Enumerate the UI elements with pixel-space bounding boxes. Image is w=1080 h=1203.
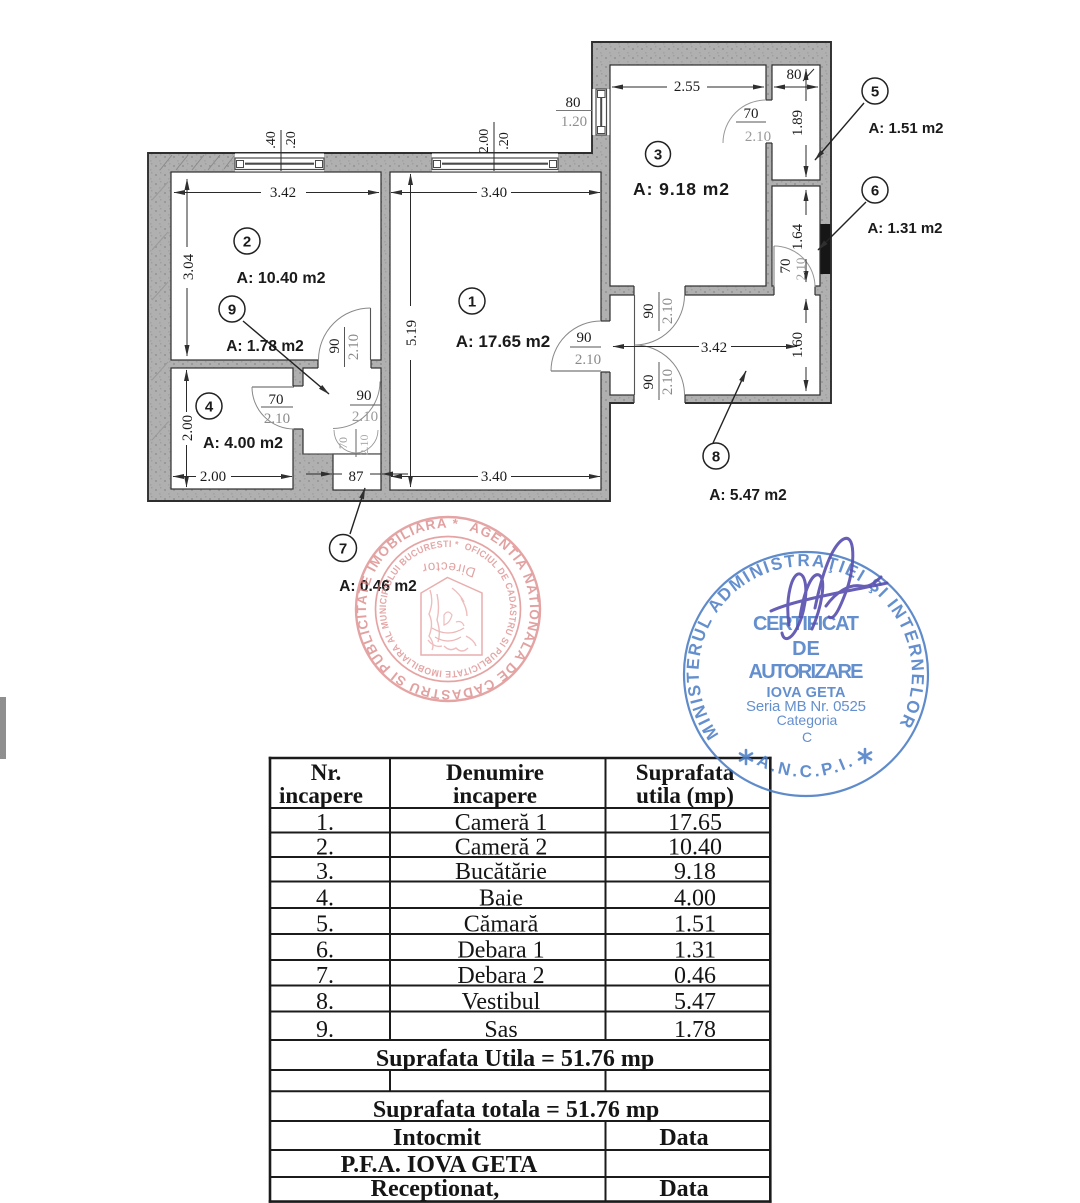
- svg-text:9.: 9.: [316, 1017, 334, 1043]
- svg-text:Data: Data: [659, 1176, 708, 1202]
- svg-text:Suprafata totala = 51.76 mp: Suprafata totala = 51.76 mp: [373, 1097, 659, 1123]
- svg-text:Debara 2: Debara 2: [457, 963, 544, 989]
- svg-text:2.10: 2.10: [793, 258, 808, 281]
- svg-text:1.31: 1.31: [674, 938, 716, 964]
- svg-text:6: 6: [871, 183, 879, 200]
- svg-text:8.: 8.: [316, 989, 334, 1015]
- svg-text:90: 90: [357, 388, 372, 404]
- svg-text:2.10: 2.10: [264, 411, 290, 427]
- svg-text:.20: .20: [497, 132, 512, 150]
- svg-text:Baie: Baie: [479, 886, 523, 912]
- svg-text:2.10: 2.10: [660, 369, 676, 395]
- svg-text:17.65: 17.65: [668, 810, 722, 836]
- svg-text:90: 90: [641, 304, 657, 319]
- svg-text:Categoria: Categoria: [777, 712, 838, 728]
- svg-text:2.10: 2.10: [346, 334, 362, 360]
- svg-text:3.40: 3.40: [481, 469, 507, 485]
- svg-text:90: 90: [577, 330, 592, 346]
- svg-text:Cămară: Cămară: [464, 912, 539, 938]
- svg-text:Receptionat,: Receptionat,: [371, 1176, 500, 1202]
- svg-text:9.18: 9.18: [674, 859, 716, 885]
- svg-text:7.: 7.: [316, 963, 334, 989]
- svg-text:2.00: 2.00: [180, 415, 196, 441]
- svg-text:2.55: 2.55: [674, 79, 700, 95]
- svg-text:4.00: 4.00: [674, 886, 716, 912]
- svg-text:P.F.A. IOVA GETA: P.F.A. IOVA GETA: [341, 1152, 538, 1178]
- svg-text:CERTIFICAT: CERTIFICAT: [753, 613, 859, 635]
- svg-text:incapere: incapere: [279, 783, 363, 808]
- svg-text:2.10: 2.10: [357, 435, 371, 456]
- svg-text:3.42: 3.42: [701, 340, 727, 356]
- svg-text:1.89: 1.89: [790, 110, 806, 136]
- svg-text:5.: 5.: [316, 912, 334, 938]
- svg-text:0.46: 0.46: [674, 963, 716, 989]
- svg-text:Denumire: Denumire: [446, 760, 544, 785]
- svg-text:Director: Director: [420, 559, 478, 580]
- svg-text:1.64: 1.64: [790, 223, 806, 250]
- svg-text:2.10: 2.10: [352, 409, 378, 425]
- svg-text:incapere: incapere: [453, 783, 537, 808]
- svg-text:3.04: 3.04: [181, 253, 197, 280]
- svg-text:3.42: 3.42: [270, 185, 296, 201]
- svg-text:A: 4.00 m2: A: 4.00 m2: [203, 435, 283, 452]
- svg-text:80: 80: [566, 95, 581, 111]
- svg-text:3: 3: [654, 147, 662, 164]
- svg-text:A: 5.47 m2: A: 5.47 m2: [709, 487, 787, 504]
- svg-text:Nr.: Nr.: [311, 760, 341, 785]
- svg-text:10.40: 10.40: [668, 835, 722, 861]
- svg-text:utila (mp): utila (mp): [636, 783, 734, 808]
- svg-text:3.40: 3.40: [481, 185, 507, 201]
- svg-text:Suprafata: Suprafata: [636, 760, 735, 785]
- svg-text:2.00: 2.00: [477, 129, 492, 154]
- svg-text:5: 5: [871, 84, 879, 101]
- svg-text:2.10: 2.10: [660, 298, 676, 324]
- svg-text:1.78: 1.78: [674, 1017, 716, 1043]
- svg-text:90: 90: [641, 375, 657, 390]
- svg-text:3.: 3.: [316, 859, 334, 885]
- svg-text:AUTORIZARE: AUTORIZARE: [749, 661, 864, 683]
- svg-text:A: 1.78 m2: A: 1.78 m2: [226, 338, 304, 355]
- svg-text:7: 7: [339, 541, 347, 558]
- svg-text:87: 87: [349, 469, 365, 485]
- svg-text:5.47: 5.47: [674, 989, 716, 1015]
- svg-text:A: 10.40 m2: A: 10.40 m2: [237, 270, 326, 287]
- svg-text:2.10: 2.10: [745, 129, 771, 145]
- svg-text:1.51: 1.51: [674, 912, 716, 938]
- svg-text:.40: .40: [264, 131, 279, 149]
- svg-text:90: 90: [327, 339, 343, 354]
- svg-text:2.: 2.: [316, 835, 334, 861]
- svg-text:4: 4: [205, 399, 214, 416]
- svg-text:.20: .20: [284, 131, 299, 149]
- svg-text:DE: DE: [792, 638, 820, 660]
- svg-text:Intocmit: Intocmit: [393, 1125, 481, 1151]
- svg-text:Cameră 2: Cameră 2: [455, 835, 548, 861]
- svg-text:Bucătărie: Bucătărie: [455, 859, 547, 885]
- svg-text:Suprafata Utila = 51.76 mp: Suprafata Utila = 51.76 mp: [376, 1046, 654, 1072]
- svg-text:Sas: Sas: [484, 1017, 517, 1043]
- svg-text:2: 2: [243, 234, 251, 251]
- svg-text:70: 70: [778, 259, 794, 274]
- svg-text:70: 70: [336, 437, 350, 449]
- svg-text:A: 17.65 m2: A: 17.65 m2: [456, 332, 551, 351]
- svg-text:C: C: [802, 729, 812, 745]
- svg-text:Cameră 1: Cameră 1: [455, 810, 548, 836]
- svg-text:1.60: 1.60: [790, 332, 806, 358]
- svg-text:A: 1.31 m2: A: 1.31 m2: [867, 220, 942, 237]
- svg-text:70: 70: [269, 392, 284, 408]
- svg-text:8: 8: [712, 449, 720, 466]
- svg-text:A: 9.18 m2: A: 9.18 m2: [633, 179, 729, 199]
- svg-text:1: 1: [468, 294, 476, 311]
- svg-text:5.19: 5.19: [404, 320, 420, 346]
- svg-text:Vestibul: Vestibul: [462, 989, 541, 1015]
- svg-text:2.10: 2.10: [575, 352, 601, 368]
- svg-text:Data: Data: [659, 1125, 708, 1151]
- svg-text:9: 9: [228, 302, 236, 319]
- svg-text:A: 1.51 m2: A: 1.51 m2: [868, 120, 943, 137]
- svg-text:2.00: 2.00: [200, 469, 226, 485]
- svg-text:OFICIUL DE CADASTRU SI PUBLICI: OFICIUL DE CADASTRU SI PUBLICITATE IMOBI…: [378, 539, 518, 679]
- svg-text:1.20: 1.20: [561, 114, 587, 130]
- svg-text:70: 70: [744, 106, 759, 122]
- svg-text:80: 80: [787, 67, 802, 83]
- svg-text:4.: 4.: [316, 886, 334, 912]
- svg-text:1.: 1.: [316, 810, 334, 836]
- svg-text:6.: 6.: [316, 938, 334, 964]
- svg-text:Debara 1: Debara 1: [457, 938, 544, 964]
